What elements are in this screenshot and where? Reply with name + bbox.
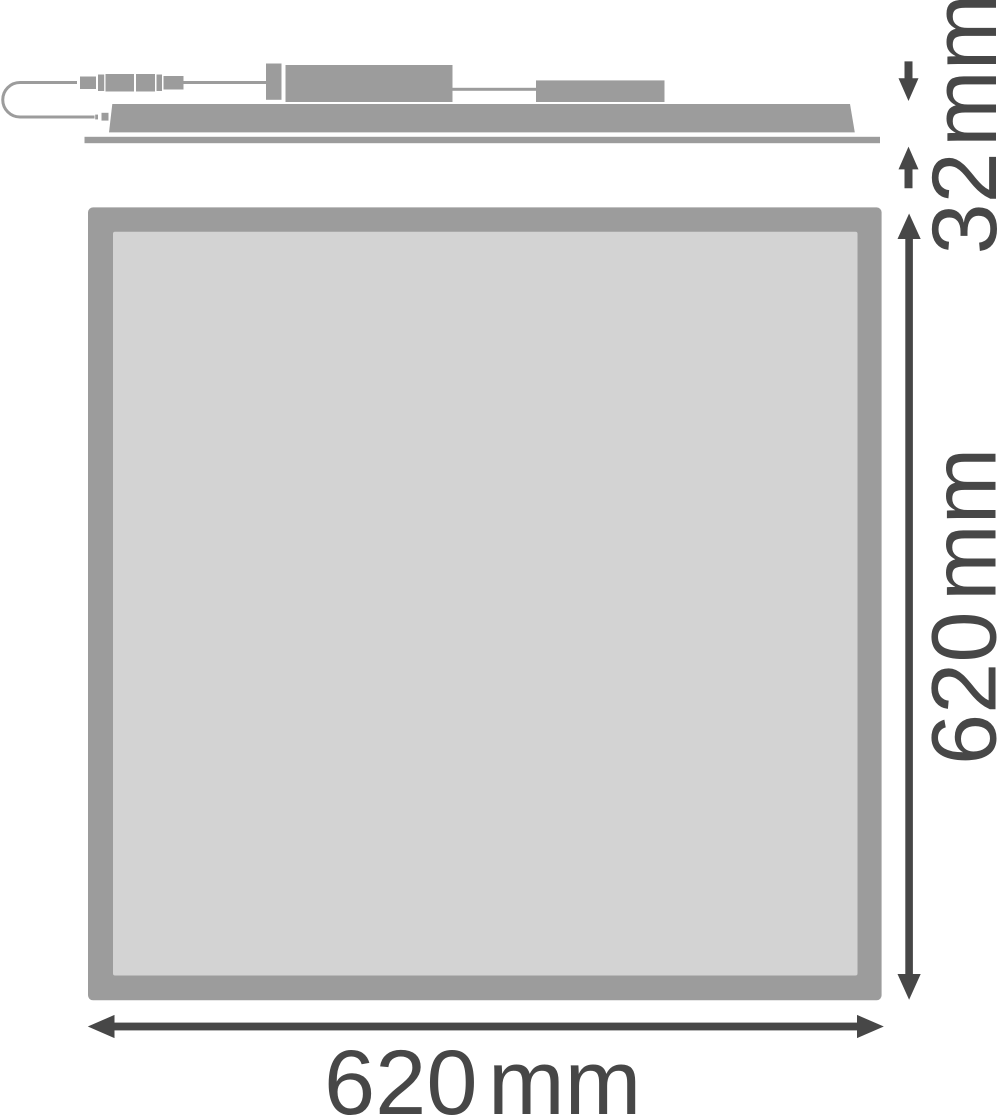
svg-text:mm: mm: [488, 1032, 641, 1118]
svg-text:mm: mm: [914, 0, 1000, 147]
svg-text:32: 32: [914, 152, 1000, 254]
svg-text:mm: mm: [914, 448, 1000, 601]
svg-text:620: 620: [324, 1032, 478, 1118]
svg-text:620: 620: [914, 612, 1000, 766]
